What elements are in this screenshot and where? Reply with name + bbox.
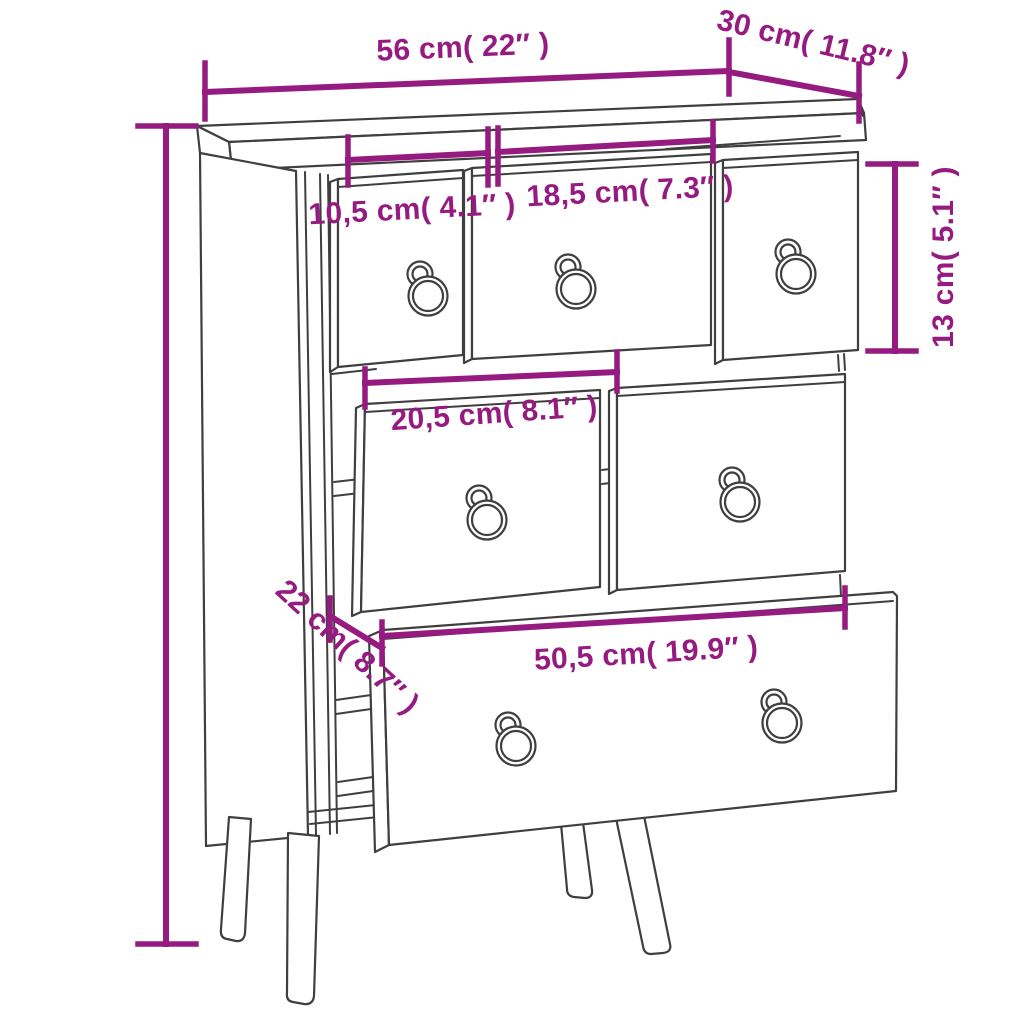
cabinet-dimension-diagram: 56 cm( 22″ ) 30 cm( 11.8″ ) 10,5 cm( 4.1… [0,0,1024,1024]
top-drawer-height-label: 13 cm( 5.1″ ) [927,166,960,348]
dimension-diagram-canvas: 56 cm( 22″ ) 30 cm( 11.8″ ) 10,5 cm( 4.1… [0,0,1024,1024]
drawers [330,152,897,852]
leg-front-left [287,833,319,1004]
cabinet-side-panel [200,153,308,846]
